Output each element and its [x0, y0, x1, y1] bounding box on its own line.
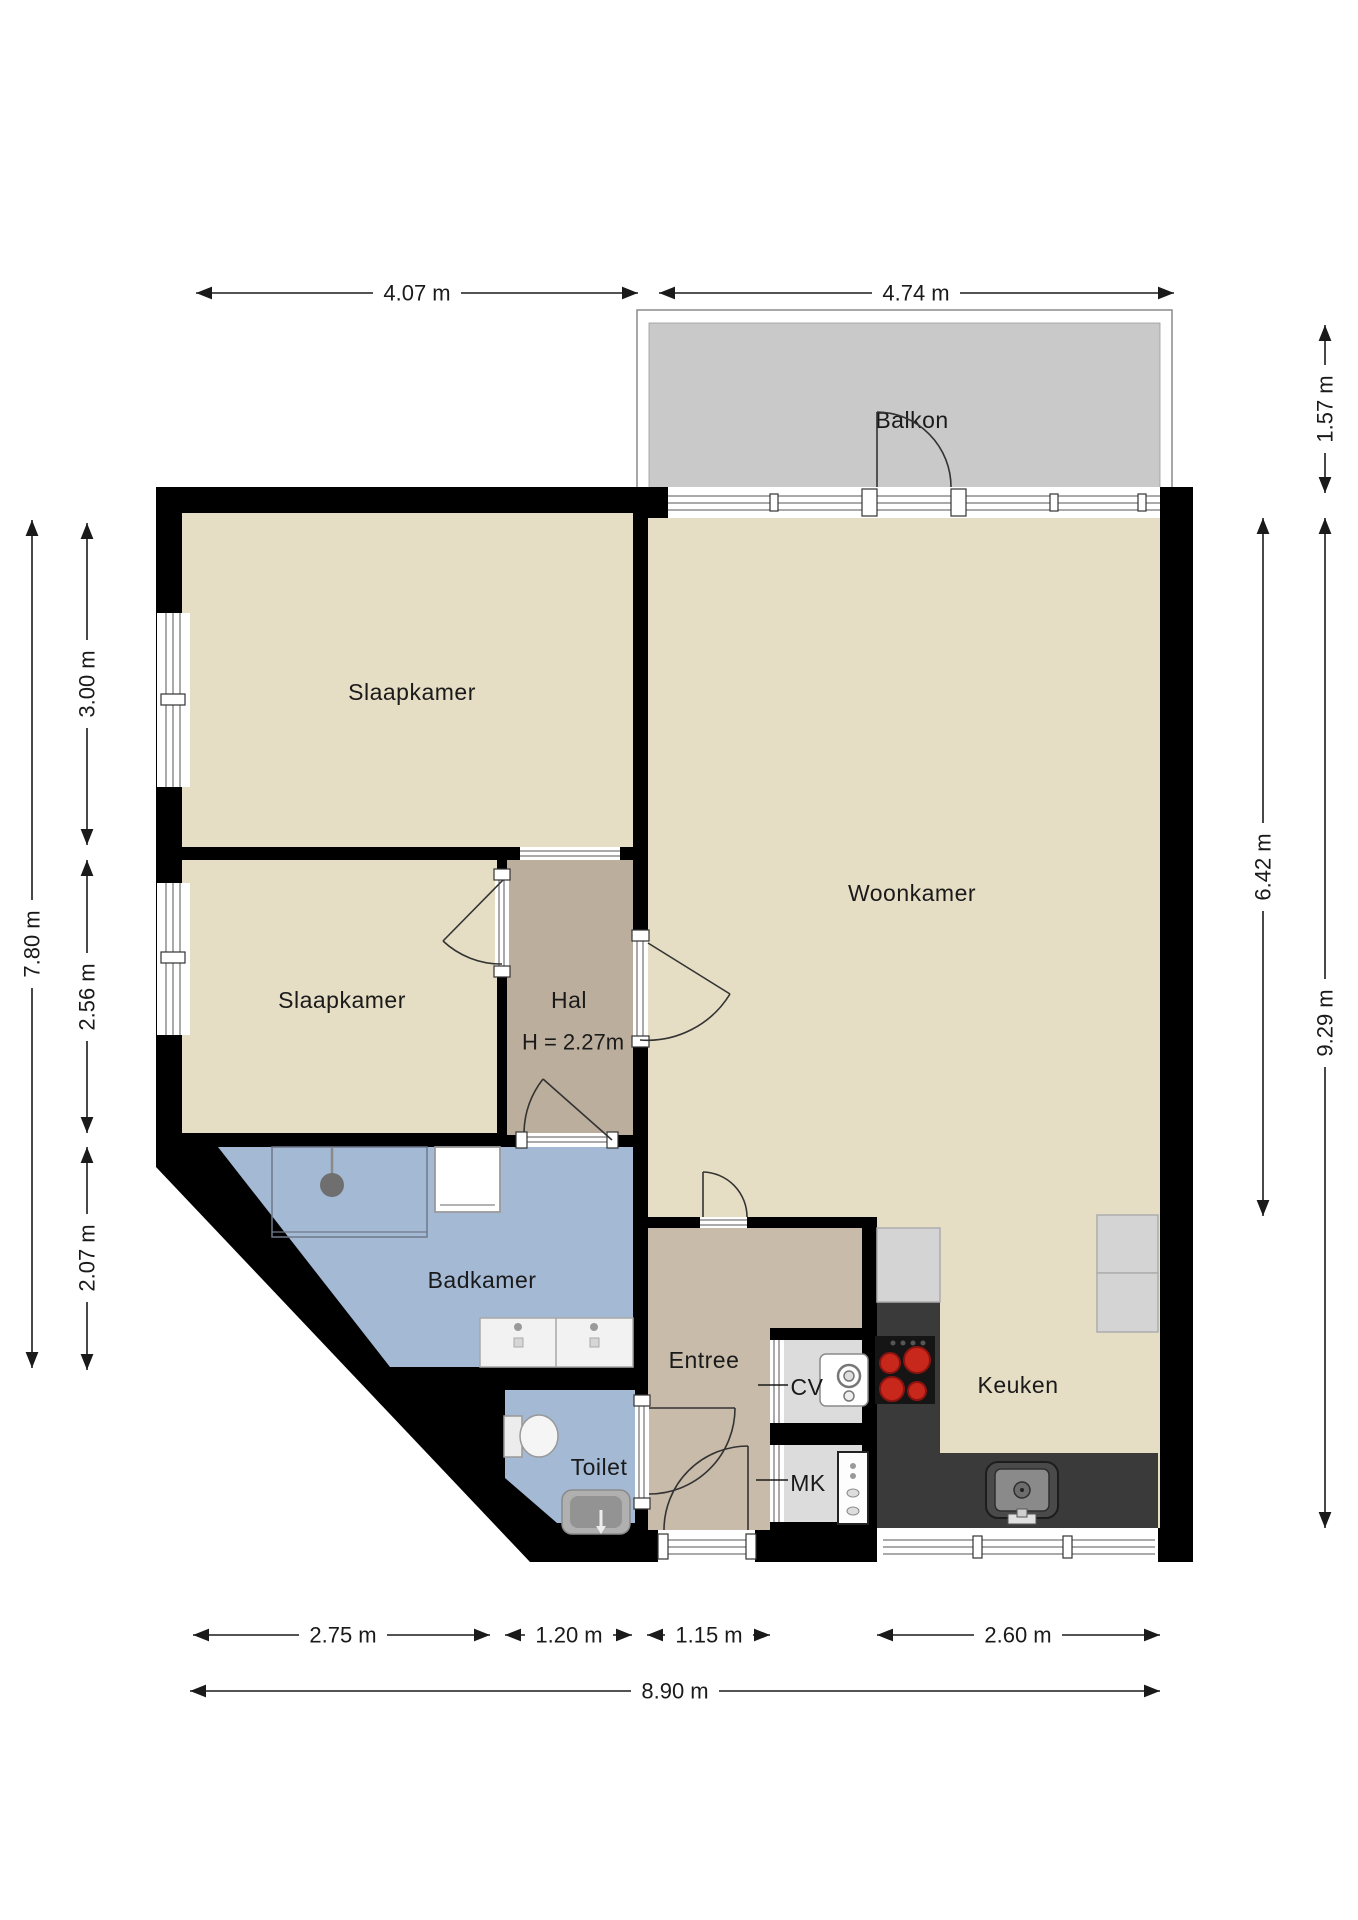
balkon-label: Balkon: [875, 407, 948, 433]
badkamer-label: Badkamer: [428, 1267, 537, 1293]
fontein-sink: [562, 1490, 630, 1534]
keuken-label: Keuken: [977, 1372, 1058, 1398]
svg-text:8.90 m: 8.90 m: [641, 1679, 708, 1704]
mk-meter-panel: [838, 1452, 868, 1524]
cv-door: [770, 1340, 784, 1423]
svg-text:2.75 m: 2.75 m: [309, 1623, 376, 1648]
svg-text:4.74 m: 4.74 m: [882, 281, 949, 306]
cv-label: CV: [791, 1374, 824, 1400]
toilet-label: Toilet: [571, 1454, 628, 1480]
svg-text:1.20 m: 1.20 m: [535, 1623, 602, 1648]
hal-label: Hal: [551, 987, 587, 1013]
svg-text:9.29 m: 9.29 m: [1313, 989, 1338, 1056]
dim-right-2: 6.42 m: [1249, 518, 1277, 1216]
dim-right-3: 9.29 m: [1311, 518, 1339, 1528]
washer: [435, 1147, 500, 1212]
dim-left-2: 3.00 m: [73, 523, 101, 845]
dim-bottom-3: 1.15 m: [647, 1621, 770, 1649]
stove: [875, 1336, 935, 1404]
dim-top-1: 4.07 m: [196, 279, 638, 307]
cv-boiler: [820, 1354, 868, 1406]
kitchen-sink: [986, 1462, 1058, 1524]
room-balkon: Balkon: [637, 310, 1172, 490]
keuken-windows: [877, 1528, 1158, 1562]
hal-transom-window: [520, 847, 620, 860]
svg-text:2.07 m: 2.07 m: [75, 1224, 100, 1291]
dim-top-2: 4.74 m: [659, 279, 1174, 307]
svg-text:7.80 m: 7.80 m: [20, 910, 45, 977]
slaapkamer-1-label: Slaapkamer: [348, 679, 476, 705]
slaapkamer-1-window: [157, 613, 190, 787]
svg-text:6.42 m: 6.42 m: [1251, 833, 1276, 900]
svg-text:1.15 m: 1.15 m: [675, 1623, 742, 1648]
svg-text:2.60 m: 2.60 m: [984, 1623, 1051, 1648]
slaapkamer-2-label: Slaapkamer: [278, 987, 406, 1013]
wc: [504, 1415, 558, 1457]
dim-left-4: 2.07 m: [73, 1147, 101, 1370]
woonkamer-label: Woonkamer: [848, 880, 976, 906]
floorplan-drawing: Balkon: [0, 0, 1358, 1920]
double-washbasin: [480, 1318, 633, 1367]
svg-text:3.00 m: 3.00 m: [75, 650, 100, 717]
dim-left-3: 2.56 m: [73, 860, 101, 1133]
entree-label: Entree: [669, 1347, 740, 1373]
svg-text:4.07 m: 4.07 m: [383, 281, 450, 306]
hal-height-note: H = 2.27m: [522, 1030, 624, 1055]
dim-right-1: 1.57 m: [1311, 325, 1339, 493]
floorplan-page: Balkon: [0, 0, 1358, 1920]
dim-left-1: 7.80 m: [18, 520, 46, 1368]
slaapkamer-2-window: [157, 883, 190, 1035]
dim-bottom-1: 2.75 m: [193, 1621, 490, 1649]
svg-text:1.57 m: 1.57 m: [1313, 375, 1338, 442]
woonkamer-top-window: [668, 487, 1160, 518]
dim-bottom-2: 1.20 m: [505, 1621, 632, 1649]
svg-text:2.56 m: 2.56 m: [75, 963, 100, 1030]
dim-total-width: 8.90 m: [190, 1677, 1160, 1705]
kitchen-cabinets: [1097, 1215, 1158, 1332]
mk-label: MK: [790, 1470, 826, 1496]
dim-bottom-4: 2.60 m: [877, 1621, 1160, 1649]
fridge: [877, 1228, 940, 1302]
mk-door: [770, 1445, 784, 1522]
